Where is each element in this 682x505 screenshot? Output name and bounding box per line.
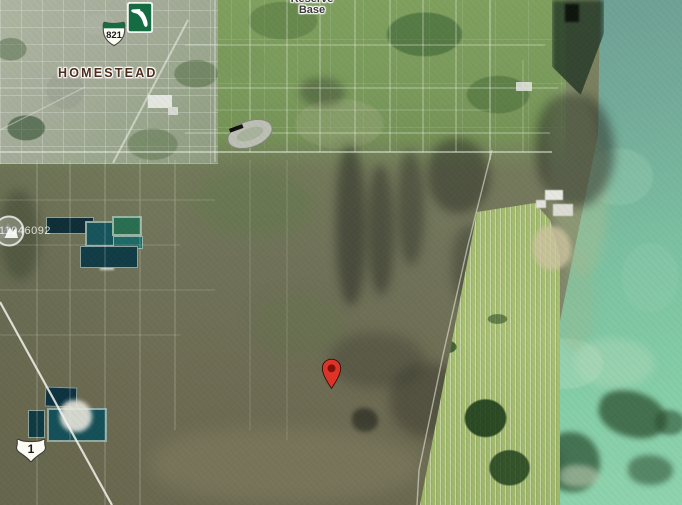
homestead-city-label: HOMESTEAD (58, 66, 158, 80)
location-pin[interactable] (321, 358, 342, 390)
route-shield-821: 821 (100, 17, 128, 49)
florida-turnpike-icon (127, 2, 153, 33)
satellite-map-canvas[interactable]: HOMESTEAD Reserve Base 821 1 (0, 0, 682, 505)
route-shield-821-number: 821 (100, 30, 128, 41)
reserve-base-label: Reserve Base (280, 0, 344, 16)
reserve-base-label-line2: Base (280, 5, 344, 16)
watermark-text: A11046092 (0, 225, 51, 237)
route-shield-us1: 1 (16, 434, 46, 463)
route-shield-us1-number: 1 (16, 442, 46, 456)
